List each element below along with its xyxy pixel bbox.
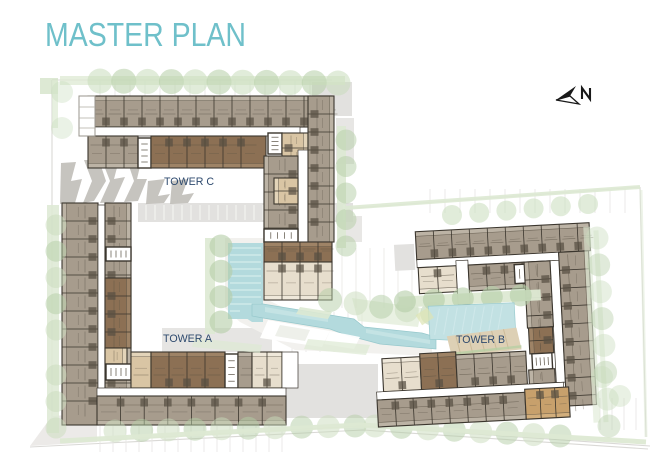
svg-text:TOWER A: TOWER A [163,333,212,345]
svg-text:TOWER B: TOWER B [456,334,505,346]
svg-text:TOWER C: TOWER C [164,176,214,188]
svg-text:MASTER PLAN: MASTER PLAN [45,16,246,53]
